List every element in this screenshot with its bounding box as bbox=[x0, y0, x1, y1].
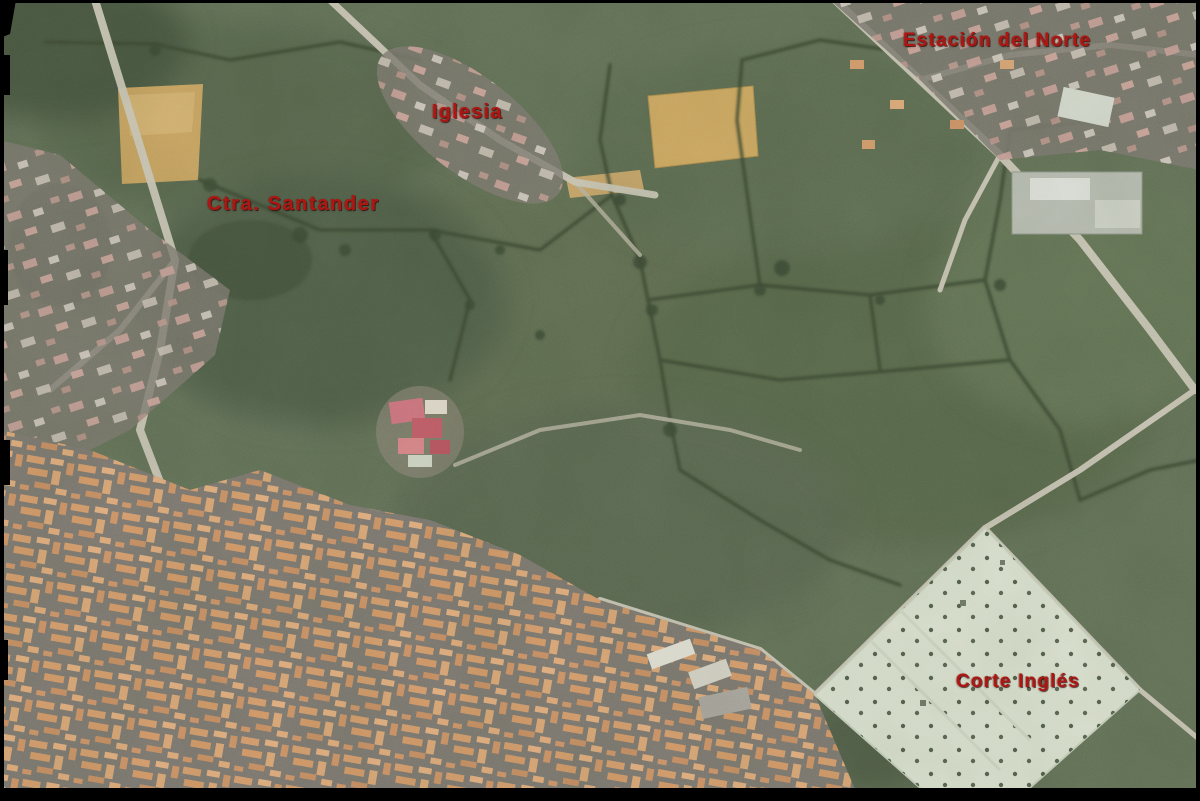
map-label-church: Iglesia bbox=[432, 101, 503, 124]
aerial-map-image: Estación del Norte Iglesia Ctra. Santand… bbox=[0, 0, 1200, 801]
map-label-station: Estación del Norte bbox=[903, 30, 1091, 52]
map-label-road: Ctra. Santander bbox=[207, 193, 380, 216]
map-label-store: Corte Inglés bbox=[956, 671, 1080, 693]
